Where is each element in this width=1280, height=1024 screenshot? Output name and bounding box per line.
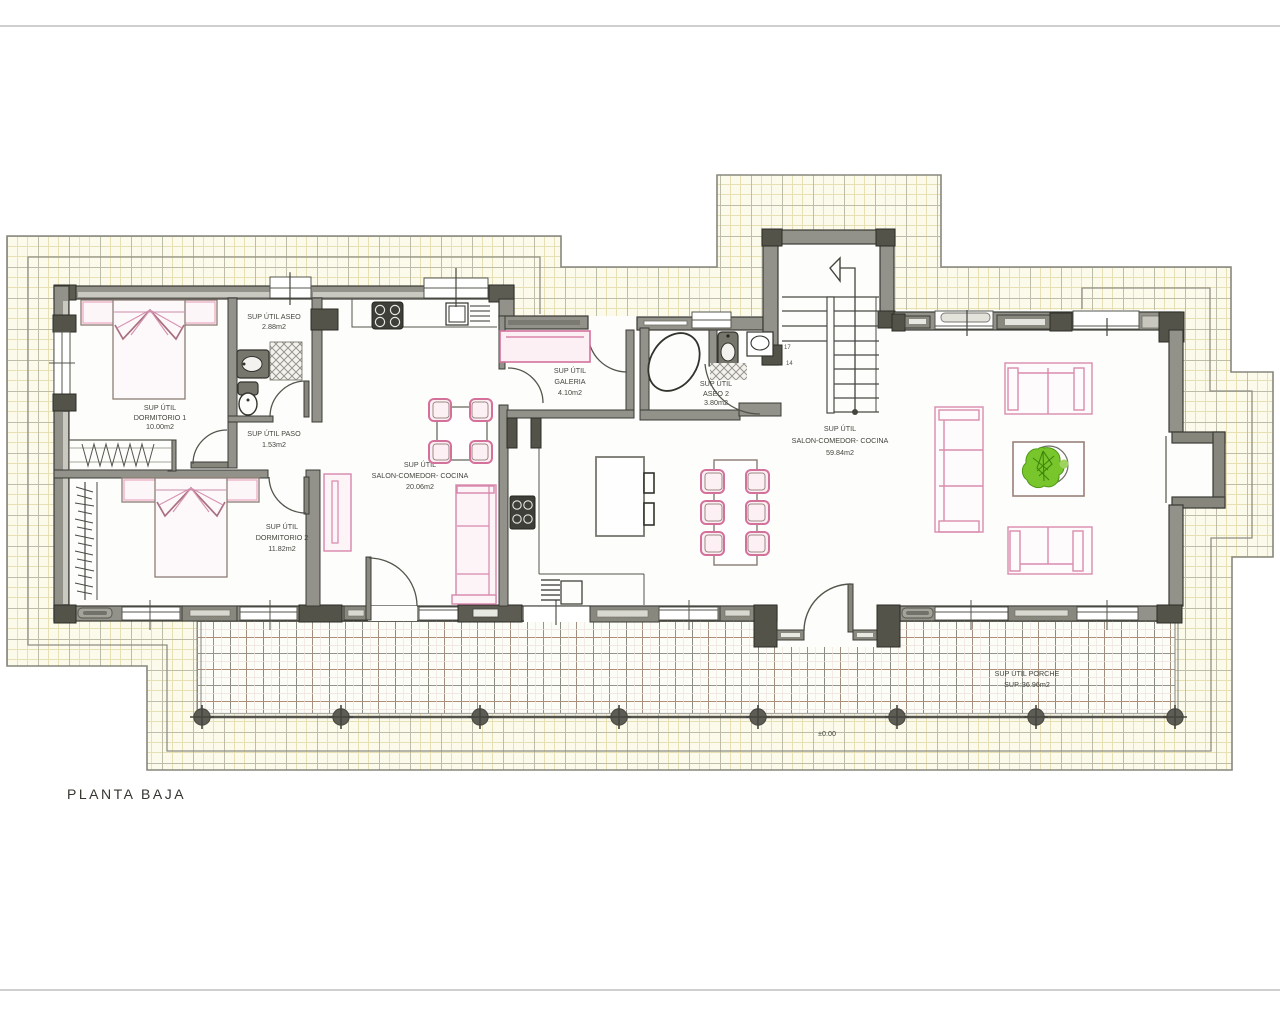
svg-text:20.06m2: 20.06m2 [406,482,434,491]
svg-text:ASEO 2: ASEO 2 [703,389,729,398]
svg-text:3.80m2: 3.80m2 [704,398,728,407]
svg-text:SUP ÚTIL PASO: SUP ÚTIL PASO [247,429,301,438]
svg-text:DORMITORIO 2: DORMITORIO 2 [256,533,309,542]
svg-text:SUP ÚTIL: SUP ÚTIL [554,366,586,375]
svg-text:11.82m2: 11.82m2 [268,544,295,553]
svg-text:SALON-COMEDOR- COCINA: SALON-COMEDOR- COCINA [792,436,889,445]
svg-text:SUP ÚTIL: SUP ÚTIL [144,403,176,412]
svg-text:DORMITORIO 1: DORMITORIO 1 [134,413,187,422]
svg-text:10.00m2: 10.00m2 [146,422,174,431]
svg-text:SUP ÚTIL: SUP ÚTIL [266,522,298,531]
svg-text:GALERIA: GALERIA [554,377,585,386]
svg-text:SUP ÚTIL: SUP ÚTIL [824,424,856,433]
svg-text:17: 17 [784,345,791,351]
svg-text:4.10m2: 4.10m2 [558,388,582,397]
svg-text:SUP.:36.96m2: SUP.:36.96m2 [1004,680,1050,689]
svg-text:SUP ÚTIL PORCHE: SUP ÚTIL PORCHE [995,669,1060,678]
svg-text:14: 14 [786,361,793,367]
svg-text:SUP ÚTIL ASEO: SUP ÚTIL ASEO [247,312,301,321]
svg-text:2.88m2: 2.88m2 [262,322,286,331]
svg-text:SUP ÚTIL: SUP ÚTIL [700,379,732,388]
svg-text:±0.00: ±0.00 [818,729,836,738]
svg-text:59.84m2: 59.84m2 [826,448,854,457]
svg-text:SALON-COMEDOR- COCINA: SALON-COMEDOR- COCINA [372,471,469,480]
svg-text:1.53m2: 1.53m2 [262,440,286,449]
svg-text:PLANTA BAJA: PLANTA BAJA [67,786,186,802]
